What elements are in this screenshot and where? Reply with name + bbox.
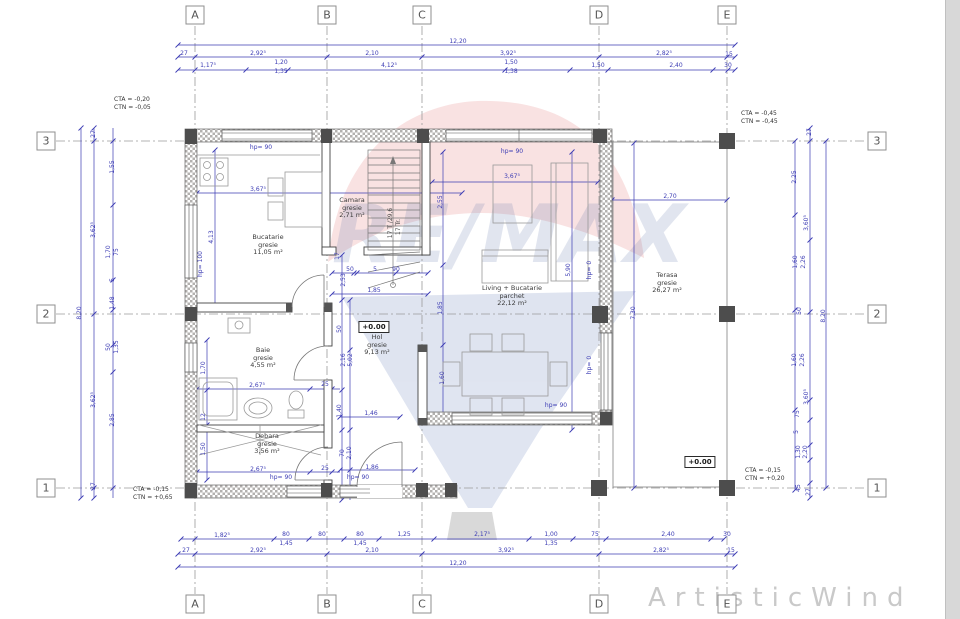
grid-marker-C-top: C bbox=[413, 6, 432, 25]
floor-plan-sheet: RE/MAX bbox=[0, 0, 960, 619]
dim-label: 3,92⁵ bbox=[498, 548, 514, 554]
dim-label: 50 bbox=[346, 267, 354, 273]
dim-label: 12 bbox=[201, 413, 207, 421]
grid-marker-B-top: B bbox=[318, 6, 337, 25]
dim-label: 27 bbox=[807, 128, 813, 136]
dim-label: 80 bbox=[282, 532, 290, 538]
dim-label: 1,45 bbox=[279, 541, 292, 547]
dim-label: 75 bbox=[795, 410, 801, 418]
dim-label: 12,20 bbox=[449, 39, 466, 45]
dim-label: 1,35 bbox=[114, 340, 120, 353]
dim-label: 2,40 bbox=[661, 532, 674, 538]
dim-label: 12,20 bbox=[449, 561, 466, 567]
dim-label: 1,60 bbox=[793, 255, 799, 268]
dim-label: 1,35 bbox=[274, 69, 287, 75]
dim-label: 90 bbox=[392, 267, 400, 273]
dim-label: 7,30 bbox=[631, 306, 637, 319]
dim-label: 50 bbox=[797, 307, 803, 315]
dim-label: 1,60 bbox=[440, 371, 446, 384]
dim-label: 3,62⁵ bbox=[91, 392, 97, 408]
dim-label: 2,17⁵ bbox=[474, 532, 490, 538]
grid-marker-2-right: 2 bbox=[868, 305, 887, 324]
dim-label: 2,40 bbox=[669, 63, 682, 69]
dim-label: 2,10 bbox=[365, 51, 378, 57]
dim-label: 1,00 bbox=[544, 532, 557, 538]
viewer-edge-strip bbox=[945, 0, 960, 619]
dim-label: 2,70 bbox=[663, 194, 676, 200]
grid-marker-1-left: 1 bbox=[37, 479, 56, 498]
dim-label: 5 bbox=[110, 278, 116, 282]
dim-label: 27 bbox=[806, 488, 812, 496]
grid-marker-B-bottom: B bbox=[318, 595, 337, 614]
grid-marker-3-right: 3 bbox=[868, 132, 887, 151]
dim-label: 1,70 bbox=[106, 245, 112, 258]
dim-label: 1,35 bbox=[544, 541, 557, 547]
dim-label: 2,10 bbox=[347, 446, 353, 459]
dim-label: 1,50 bbox=[201, 442, 207, 455]
dim-label: 2,67⁵ bbox=[250, 467, 266, 473]
dim-label: hp= 0 bbox=[587, 261, 593, 279]
dim-label: 5 bbox=[373, 267, 377, 273]
dim-label: 1,85 bbox=[438, 301, 444, 314]
level-marker: +0.00 bbox=[358, 321, 389, 333]
dim-label: 2,82⁵ bbox=[656, 51, 672, 57]
dim-label: 1,46 bbox=[364, 411, 377, 417]
dim-label: 1,85 bbox=[367, 288, 380, 294]
dim-label: 1,60 bbox=[792, 353, 798, 366]
dim-label: 2,92⁵ bbox=[250, 548, 266, 554]
dim-label: 2,10 bbox=[365, 548, 378, 554]
dim-label: 80 bbox=[356, 532, 364, 538]
dim-label: 50 bbox=[106, 343, 112, 351]
dim-label: 1,25 bbox=[397, 532, 410, 538]
dim-label: hp= 100 bbox=[198, 251, 204, 277]
dim-label: 3,67⁵ bbox=[504, 174, 520, 180]
grid-marker-D-top: D bbox=[590, 6, 609, 25]
dim-label: 5 bbox=[794, 430, 800, 434]
dim-label: 1,82⁵ bbox=[214, 533, 230, 539]
elevation-note: CTA = -0,45CTN = -0,45 bbox=[741, 110, 778, 125]
grid-marker-E-bottom: E bbox=[718, 595, 737, 614]
elevation-note: CTA = -0,15CTN = +0,20 bbox=[745, 467, 785, 482]
dim-label: 80 bbox=[318, 532, 326, 538]
grid-marker-2-left: 2 bbox=[37, 305, 56, 324]
dim-label: 4,13 bbox=[209, 230, 215, 243]
dim-label: 17 T /29,6 bbox=[388, 208, 394, 239]
dim-label: 2,25 bbox=[792, 170, 798, 183]
dim-label: 30 bbox=[723, 532, 731, 538]
dim-label: 4,12⁵ bbox=[381, 63, 397, 69]
elevation-note: CTA = -0,15CTN = +0,65 bbox=[133, 486, 173, 501]
dim-label: 5,90 bbox=[566, 263, 572, 276]
room-label-camara: Camaragresie2,71 m² bbox=[339, 197, 365, 220]
dim-label: 3,62⁵ bbox=[91, 222, 97, 238]
dim-label: 2,53 bbox=[341, 273, 347, 286]
dim-label: 25 bbox=[321, 466, 329, 472]
dim-label: 27 bbox=[91, 482, 97, 490]
room-label-baie: Baiegresie4,55 m² bbox=[250, 347, 275, 370]
dim-label: 5,02 bbox=[348, 353, 354, 366]
dim-label: 75 bbox=[114, 248, 120, 256]
dim-label: 3,60⁵ bbox=[804, 215, 810, 231]
dim-label: hp= 0 bbox=[587, 356, 593, 374]
dim-label: hp= 90 bbox=[347, 475, 369, 481]
dim-label: 17 Tr. bbox=[396, 219, 402, 235]
dim-label: 2,92⁵ bbox=[250, 51, 266, 57]
dim-label: 2,85 bbox=[110, 413, 116, 426]
dim-label: 1,20 bbox=[274, 60, 287, 66]
grid-marker-A-top: A bbox=[186, 6, 205, 25]
dim-label: 2,20 bbox=[803, 445, 809, 458]
dim-label: 1,38 bbox=[504, 69, 517, 75]
dim-label: 1,17⁵ bbox=[200, 63, 216, 69]
grid-marker-E-top: E bbox=[718, 6, 737, 25]
dim-label: 2,55 bbox=[438, 195, 444, 208]
dim-label: 17 bbox=[335, 252, 341, 260]
dim-label: 2,82⁵ bbox=[653, 548, 669, 554]
grid-marker-C-bottom: C bbox=[413, 595, 432, 614]
dim-label: 1,50 bbox=[504, 60, 517, 66]
dim-label: hp= 90 bbox=[270, 475, 292, 481]
room-label-terasa: Terasagresie26,27 m² bbox=[652, 272, 682, 295]
dim-label: 27 bbox=[182, 548, 190, 554]
dim-label: 1,55 bbox=[110, 160, 116, 173]
dim-label: 27 bbox=[180, 51, 188, 57]
dim-label: 1,50 bbox=[591, 63, 604, 69]
grid-marker-D-bottom: D bbox=[590, 595, 609, 614]
dim-label: 2,26 bbox=[800, 353, 806, 366]
elevation-note: CTA = -0,20CTN = -0,05 bbox=[114, 96, 151, 111]
dim-label: 25 bbox=[321, 382, 329, 388]
room-label-bucatarie: Bucatariegresie11,05 m² bbox=[252, 234, 283, 257]
dim-label: 2,26 bbox=[801, 255, 807, 268]
dim-label: hp= 90 bbox=[501, 149, 523, 155]
dim-label: 27 bbox=[91, 130, 97, 138]
dim-label: 1,40 bbox=[337, 404, 343, 417]
dim-label: 45 bbox=[796, 484, 802, 492]
dim-label: hp= 90 bbox=[545, 403, 567, 409]
dim-label: 2,67⁵ bbox=[249, 383, 265, 389]
dim-label: 15 bbox=[727, 548, 735, 554]
dim-label: 8,20 bbox=[77, 306, 83, 319]
room-label-living-bucatarie: Living + Bucatarieparchet22,12 m² bbox=[482, 285, 542, 308]
dim-label: 3,60⁵ bbox=[804, 389, 810, 405]
room-label-hol: Holgresie9,13 m² bbox=[364, 334, 389, 357]
dim-label: 3,67⁵ bbox=[250, 187, 266, 193]
grid-marker-1-right: 1 bbox=[868, 479, 887, 498]
dim-label: 8,20 bbox=[821, 309, 827, 322]
dim-label: 1,70 bbox=[201, 361, 207, 374]
grid-marker-3-left: 3 bbox=[37, 132, 56, 151]
labels-layer: 12,20272,92⁵2,103,92⁵2,82⁵151,17⁵1,201,3… bbox=[0, 0, 960, 619]
dim-label: 30 bbox=[724, 63, 732, 69]
dim-label: 3,92⁵ bbox=[500, 51, 516, 57]
dim-label: 1,48 bbox=[110, 296, 116, 309]
dim-label: 75 bbox=[591, 532, 599, 538]
dim-label: 1,86 bbox=[365, 465, 378, 471]
grid-marker-A-bottom: A bbox=[186, 595, 205, 614]
room-label-debara: Debaragresie3,56 m² bbox=[254, 433, 279, 456]
level-marker: +0.00 bbox=[684, 456, 715, 468]
dim-label: 50 bbox=[337, 325, 343, 333]
dim-label: 15 bbox=[725, 52, 733, 58]
dim-label: hp= 90 bbox=[250, 145, 272, 151]
